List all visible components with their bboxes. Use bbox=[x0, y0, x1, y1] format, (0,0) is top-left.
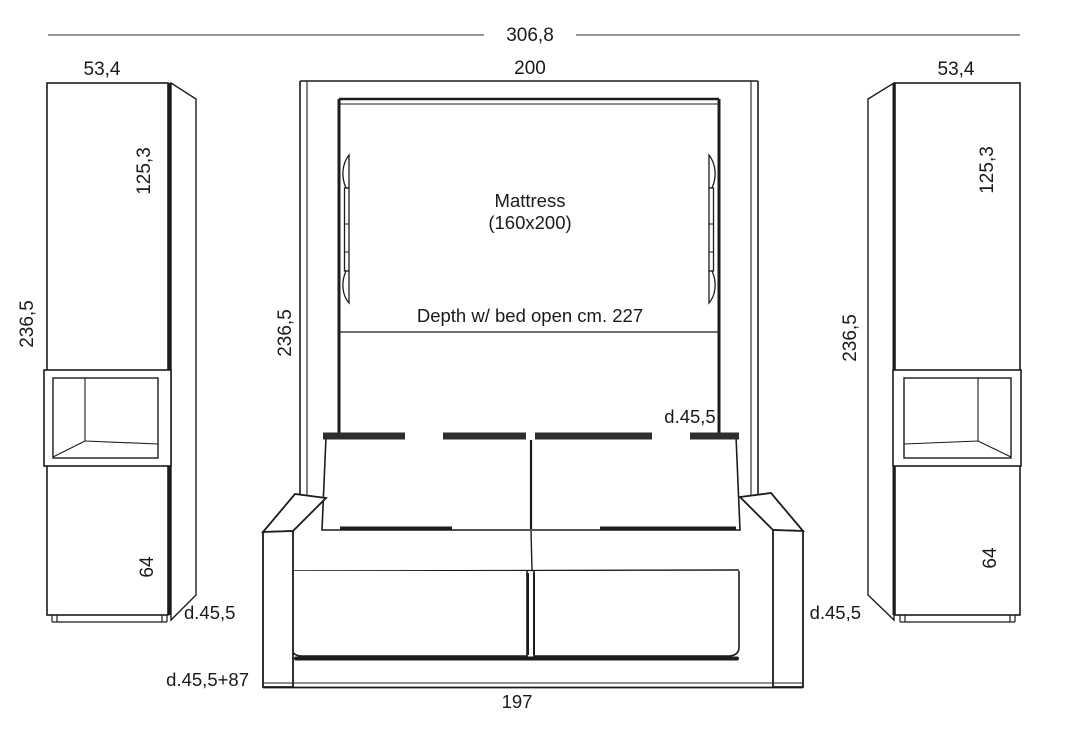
label-mattress-size: (160x200) bbox=[488, 212, 571, 233]
left-cabinet-plinth bbox=[52, 615, 167, 622]
diagram-svg: 306,8 200 53,4 53,4 125,3 125,3 236,5 23… bbox=[0, 0, 1080, 734]
bed-left-hinge bbox=[343, 155, 349, 303]
sofa-seat-cushion-right bbox=[534, 571, 739, 656]
dim-right-cabinet-upper-height: 125,3 bbox=[977, 146, 998, 194]
label-depth-bed-open: Depth w/ bed open cm. 227 bbox=[417, 305, 643, 326]
right-cabinet bbox=[868, 83, 1021, 622]
label-mattress-title: Mattress bbox=[495, 190, 566, 211]
sofa bbox=[263, 433, 803, 688]
dim-sofa-width: 197 bbox=[502, 691, 533, 712]
right-cabinet-front bbox=[895, 83, 1020, 615]
left-cabinet-side-panel bbox=[171, 83, 196, 620]
dim-overall-width: 306,8 bbox=[506, 25, 554, 46]
sofa-armrest-left-front bbox=[263, 531, 293, 687]
right-cabinet-plinth bbox=[900, 615, 1015, 622]
right-cabinet-side-panel bbox=[868, 83, 894, 620]
dim-bed-width: 200 bbox=[514, 58, 546, 79]
dim-left-cabinet-upper-height: 125,3 bbox=[134, 147, 155, 195]
dim-bed-depth: d.45,5 bbox=[664, 406, 715, 427]
dim-left-cabinet-lower-height: 64 bbox=[137, 556, 158, 578]
dim-left-cabinet-height: 236,5 bbox=[17, 300, 38, 348]
sofa-seat-front-top-edge bbox=[292, 570, 739, 571]
dim-right-cabinet-lower-height: 64 bbox=[980, 547, 1001, 569]
sofa-armrest-right-front bbox=[773, 530, 803, 687]
sofa-seat-surface-split bbox=[531, 531, 532, 570]
right-cabinet-niche-frame bbox=[893, 370, 1021, 466]
sofa-armrest-right-top bbox=[740, 493, 803, 531]
dim-sofa-depth: d.45,5+87 bbox=[166, 669, 249, 690]
dim-left-cabinet-depth: d.45,5 bbox=[184, 602, 235, 623]
sofa-back-band-gap-center bbox=[526, 433, 535, 440]
dim-right-cabinet-width: 53,4 bbox=[938, 59, 975, 80]
dim-right-cabinet-height: 236,5 bbox=[840, 314, 861, 362]
wallbed-dimension-diagram: 306,8 200 53,4 53,4 125,3 125,3 236,5 23… bbox=[0, 0, 1080, 734]
dim-right-cabinet-depth: d.45,5 bbox=[810, 602, 861, 623]
sofa-seat-cushion-left bbox=[292, 571, 527, 656]
sofa-back-band-gap-right bbox=[652, 433, 690, 440]
bed-right-hinge bbox=[709, 155, 715, 303]
sofa-armrest-left-top bbox=[263, 494, 326, 532]
sofa-back-band-gap-left bbox=[405, 433, 443, 440]
left-cabinet bbox=[44, 83, 196, 622]
dim-bed-height: 236,5 bbox=[275, 309, 296, 357]
dim-left-cabinet-width: 53,4 bbox=[84, 59, 121, 80]
